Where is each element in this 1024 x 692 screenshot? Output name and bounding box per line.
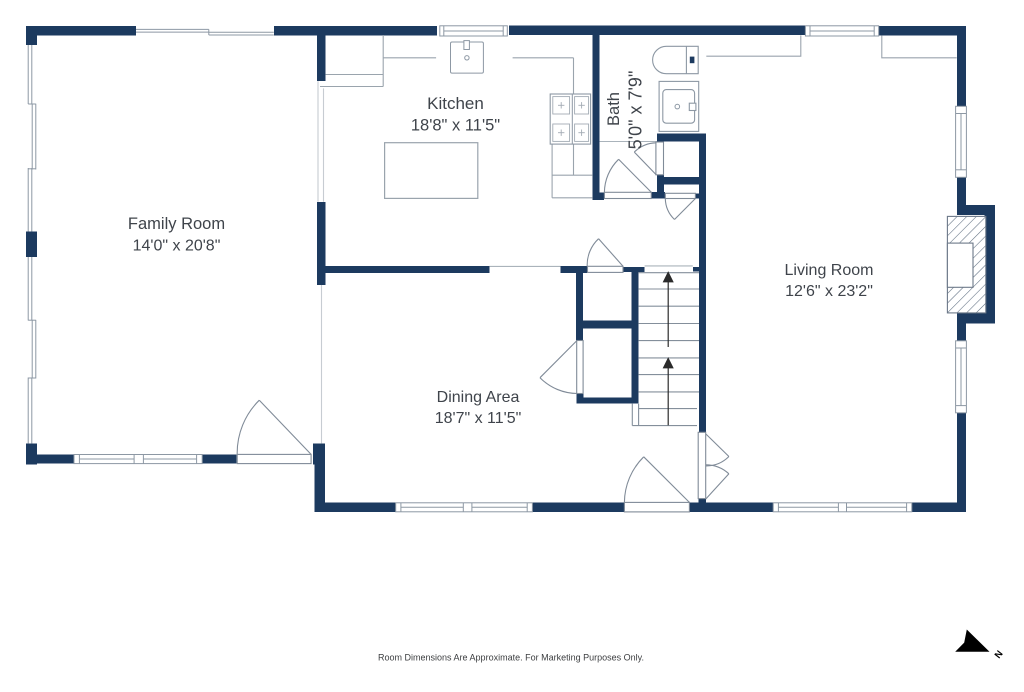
svg-text:12'6" x 23'2": 12'6" x 23'2": [785, 283, 873, 300]
svg-text:Kitchen: Kitchen: [427, 94, 484, 113]
svg-text:Bath: Bath: [605, 92, 623, 126]
svg-text:5'0" x 7'9": 5'0" x 7'9": [625, 71, 645, 150]
svg-text:18'8" x 11'5": 18'8" x 11'5": [411, 116, 500, 134]
svg-text:Family Room: Family Room: [128, 215, 225, 233]
svg-text:Living Room: Living Room: [785, 262, 874, 279]
svg-text:Room Dimensions Are Approximat: Room Dimensions Are Approximate. For Mar…: [378, 653, 644, 663]
svg-text:14'0" x 20'8": 14'0" x 20'8": [133, 238, 221, 255]
svg-text:Dining Area: Dining Area: [437, 389, 520, 406]
svg-text:18'7" x 11'5": 18'7" x 11'5": [435, 410, 522, 427]
